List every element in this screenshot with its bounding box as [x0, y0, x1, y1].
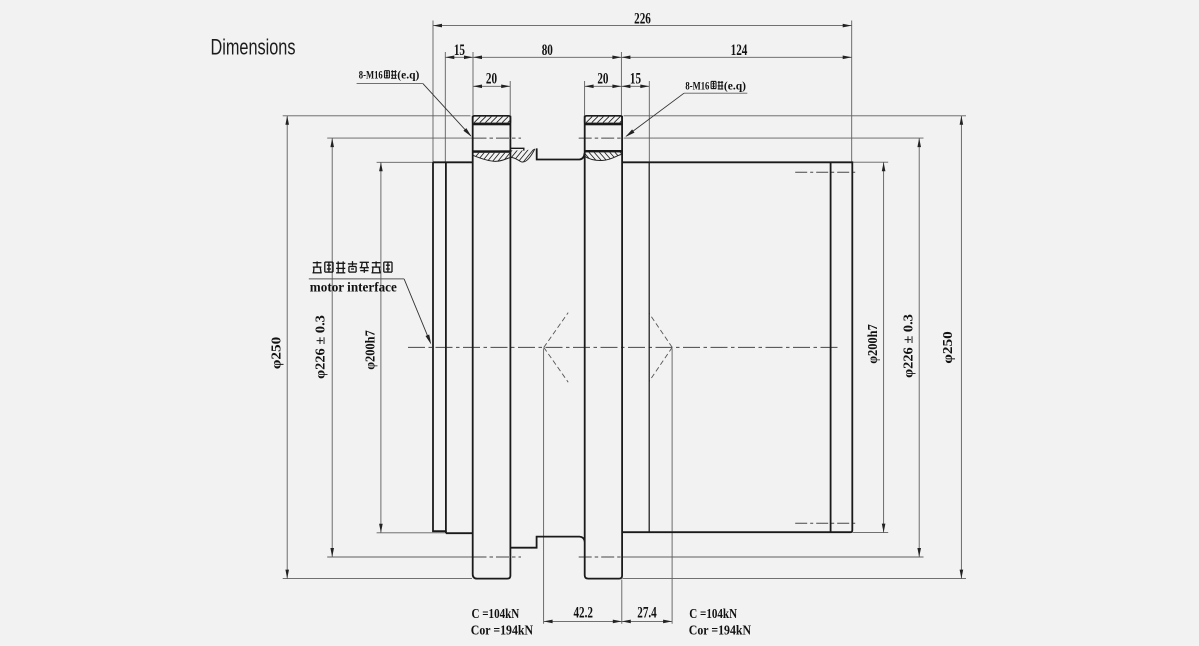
- svg-text:124: 124: [731, 41, 748, 58]
- svg-text:C =104kN: C =104kN: [689, 606, 737, 621]
- svg-text:φ200h7: φ200h7: [864, 324, 880, 364]
- svg-text:φ250: φ250: [269, 337, 284, 369]
- svg-text:(e.q): (e.q): [724, 79, 746, 92]
- svg-text:motor interface: motor interface: [310, 279, 397, 294]
- svg-text:8-M16: 8-M16: [685, 80, 709, 93]
- svg-text:Cor =194kN: Cor =194kN: [689, 623, 751, 638]
- svg-text:80: 80: [542, 41, 553, 58]
- svg-text:27.4: 27.4: [637, 604, 657, 621]
- svg-text:C =104kN: C =104kN: [472, 606, 520, 621]
- svg-text:φ200h7: φ200h7: [362, 330, 378, 370]
- svg-text:226: 226: [634, 10, 651, 27]
- svg-text:Cor =194kN: Cor =194kN: [471, 623, 533, 638]
- svg-text:(e.q): (e.q): [397, 68, 419, 81]
- svg-text:φ250: φ250: [941, 331, 956, 363]
- svg-text:φ226 ± 0.3: φ226 ± 0.3: [901, 314, 917, 378]
- svg-text:8-M16: 8-M16: [359, 69, 383, 82]
- svg-text:20: 20: [486, 70, 497, 87]
- svg-text:15: 15: [454, 41, 465, 58]
- svg-text:15: 15: [630, 70, 641, 87]
- svg-text:Dimensions: Dimensions: [211, 35, 296, 60]
- svg-text:20: 20: [597, 70, 608, 87]
- svg-text:φ226 ± 0.3: φ226 ± 0.3: [313, 315, 329, 379]
- svg-text:42.2: 42.2: [573, 604, 593, 621]
